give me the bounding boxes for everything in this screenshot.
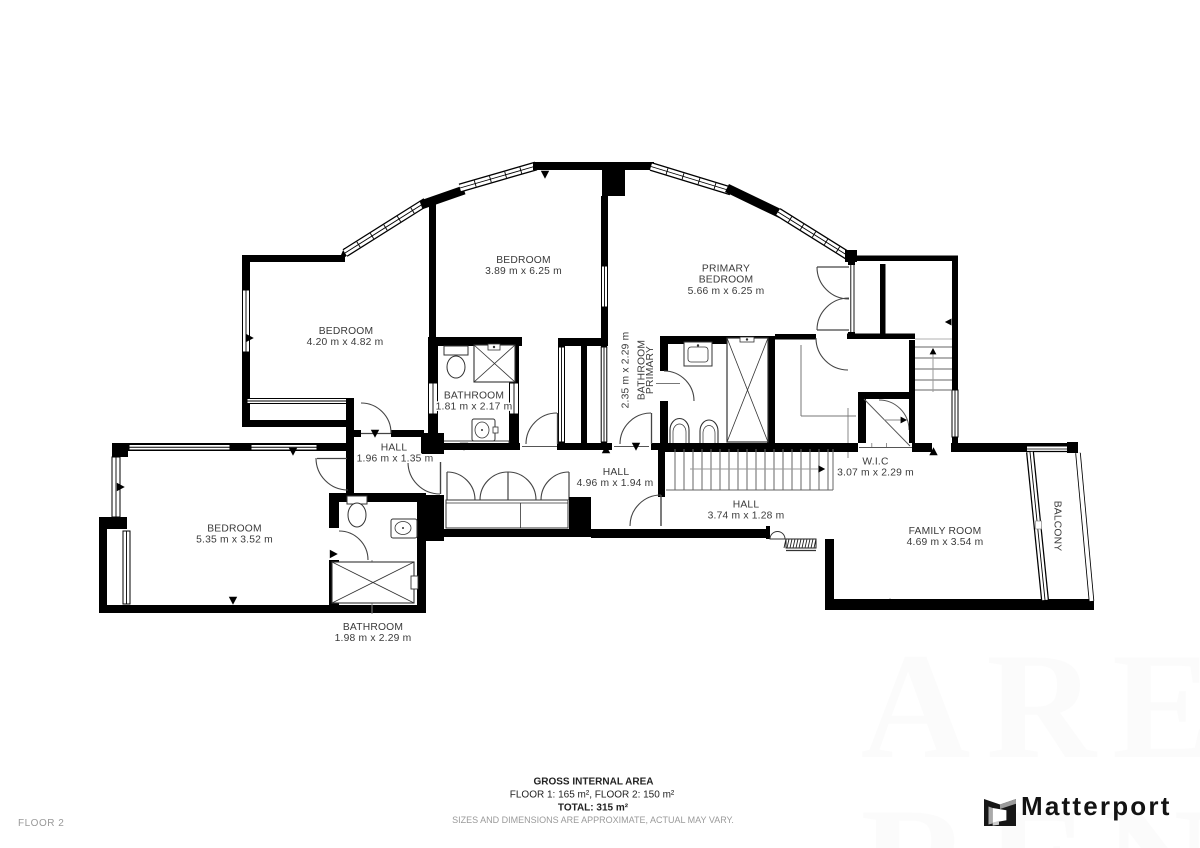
svg-text:3.89 m x 6.25 m: 3.89 m x 6.25 m [485,266,562,277]
svg-text:3.07 m x 2.29 m: 3.07 m x 2.29 m [837,468,914,479]
svg-text:4.20 m x 4.82 m: 4.20 m x 4.82 m [307,337,384,348]
svg-text:ARE: ARE [861,622,1200,790]
svg-text:4.69 m x 3.54 m: 4.69 m x 3.54 m [907,537,984,548]
svg-text:2.35 m x 2.29 m: 2.35 m x 2.29 m [621,332,632,409]
svg-text:BATHROOM: BATHROOM [636,340,647,400]
svg-text:1.81 m x 2.17 m: 1.81 m x 2.17 m [436,402,513,413]
svg-text:BEDROOM: BEDROOM [699,275,754,286]
svg-text:BALCONY: BALCONY [1052,501,1063,552]
svg-text:4.96 m x 1.94 m: 4.96 m x 1.94 m [577,478,654,489]
svg-text:BATHROOM: BATHROOM [343,622,403,633]
svg-text:FLOOR 2: FLOOR 2 [18,818,64,829]
svg-text:BEDROOM: BEDROOM [319,326,374,337]
svg-text:TOTAL: 315 m²: TOTAL: 315 m² [558,803,629,814]
svg-text:BATHROOM: BATHROOM [444,391,504,402]
svg-text:PRIMARY: PRIMARY [702,264,750,275]
svg-text:1.96 m x 1.35 m: 1.96 m x 1.35 m [357,454,434,465]
svg-text:FLOOR 1: 165 m², FLOOR 2: 150: FLOOR 1: 165 m², FLOOR 2: 150 m² [510,790,675,801]
svg-text:Matterport: Matterport [1021,791,1172,821]
svg-text:W.I.C: W.I.C [862,457,889,468]
svg-text:1.98 m x 2.29 m: 1.98 m x 2.29 m [335,633,412,644]
svg-text:HALL: HALL [733,500,760,511]
svg-text:5.35 m x 3.52 m: 5.35 m x 3.52 m [196,535,273,546]
svg-text:BEDROOM: BEDROOM [496,255,551,266]
svg-text:3.74 m x 1.28 m: 3.74 m x 1.28 m [708,510,785,521]
svg-text:5.66 m x 6.25 m: 5.66 m x 6.25 m [688,286,765,297]
svg-text:HALL: HALL [381,443,408,454]
svg-text:GROSS INTERNAL AREA: GROSS INTERNAL AREA [533,777,653,788]
svg-text:SIZES AND DIMENSIONS ARE APPRO: SIZES AND DIMENSIONS ARE APPROXIMATE, AC… [452,815,734,825]
svg-text:BEDROOM: BEDROOM [207,524,262,535]
svg-text:FAMILY ROOM: FAMILY ROOM [909,526,982,537]
svg-text:HALL: HALL [603,467,630,478]
